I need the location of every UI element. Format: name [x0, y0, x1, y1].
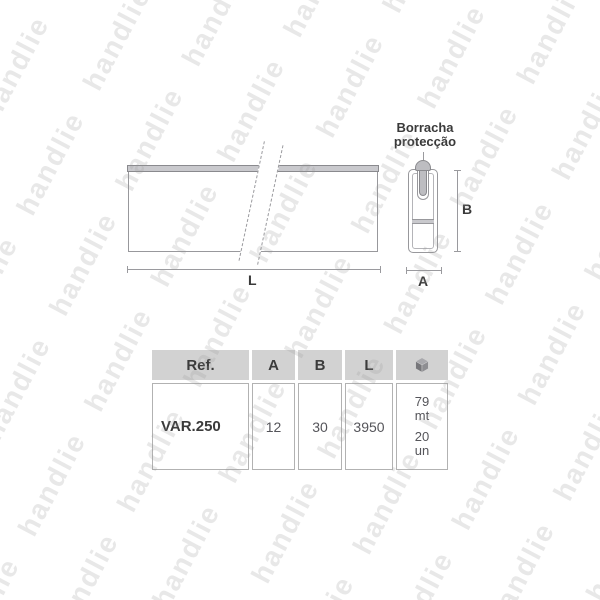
watermark-layer: handlie handlie handlie handlie handlie …	[0, 0, 600, 600]
header-b: B	[298, 350, 342, 380]
callout-line-2: protecção	[386, 135, 464, 149]
watermark-text: handlie handlie handlie handlie handlie …	[0, 0, 207, 600]
column-a: A 12	[252, 350, 295, 470]
header-l: L	[345, 350, 393, 380]
column-b: B 30	[298, 350, 342, 470]
height-dim-tick-top	[454, 170, 461, 171]
callout-line-1: Borracha	[386, 121, 464, 135]
watermark-text: handlie handlie handlie handlie handlie …	[397, 20, 600, 600]
section-divider	[412, 219, 434, 224]
cell-ref: VAR.250	[152, 383, 249, 470]
watermark-text: handlie handlie handlie handlie handlie …	[0, 0, 408, 600]
watermark-text: handlie handlie handlie handlie handlie …	[361, 0, 600, 600]
header-a: A	[252, 350, 295, 380]
watermark-text: handlie handlie handlie handlie handlie …	[128, 0, 600, 600]
width-dim-tick-left	[406, 267, 407, 274]
length-dim-tick-right	[380, 266, 381, 273]
pack-length: 79 mt	[415, 395, 429, 423]
header-ref: Ref.	[152, 350, 249, 380]
watermark-text: handlie handlie handlie handlie handlie …	[227, 0, 600, 600]
watermark-text: handlie handlie handlie handlie handlie …	[0, 0, 600, 600]
length-dimension-label: L	[248, 272, 257, 288]
width-dim-tick-right	[441, 267, 442, 274]
column-l: L 3950	[345, 350, 393, 470]
watermark-text: handlie handlie handlie handlie handlie …	[0, 0, 542, 600]
watermark-text: handlie handlie handlie handlie handlie …	[0, 0, 341, 600]
rubber-gasket-dome	[415, 160, 431, 171]
cell-packaging: 79 mt 20 un	[396, 383, 448, 470]
column-ref: Ref. VAR.250	[152, 350, 249, 470]
header-packaging	[396, 350, 448, 380]
watermark-text: handlie handlie handlie handlie handlie …	[262, 0, 600, 600]
pack-length-value: 79	[415, 395, 429, 409]
watermark-text: handlie handlie handlie handlie handlie …	[496, 56, 600, 600]
width-dimension-line	[406, 270, 442, 271]
watermark-text: handlie handlie handlie handlie handlie …	[0, 0, 140, 563]
pack-count-value: 20	[415, 430, 429, 444]
height-dimension-line	[457, 170, 458, 252]
pack-count-unit: un	[415, 444, 429, 458]
watermark-text: handlie handlie handlie handlie handlie …	[93, 0, 600, 600]
height-dimension-label: B	[462, 201, 472, 217]
pack-length-unit: mt	[415, 409, 429, 423]
width-dimension-label: A	[418, 273, 428, 289]
watermark-text: handlie handlie handlie handlie handlie …	[0, 0, 475, 600]
package-cube-icon	[413, 356, 431, 374]
catalog-page: L Borracha protecção B A Ref. VAR.250 A …	[0, 0, 600, 600]
watermark-text: handlie handlie handlie handlie handlie …	[0, 0, 274, 600]
spec-table: Ref. VAR.250 A 12 B 30 L 3950	[152, 350, 448, 470]
height-dim-tick-bottom	[454, 251, 461, 252]
rubber-protection-callout: Borracha protecção	[386, 121, 464, 149]
cell-a: 12	[252, 383, 295, 470]
cell-b: 30	[298, 383, 342, 470]
column-packaging: 79 mt 20 un	[396, 350, 448, 470]
length-dim-tick-left	[127, 266, 128, 273]
length-dimension-line	[127, 269, 381, 270]
pack-count: 20 un	[415, 430, 429, 458]
cell-l: 3950	[345, 383, 393, 470]
rubber-strip	[127, 165, 379, 172]
